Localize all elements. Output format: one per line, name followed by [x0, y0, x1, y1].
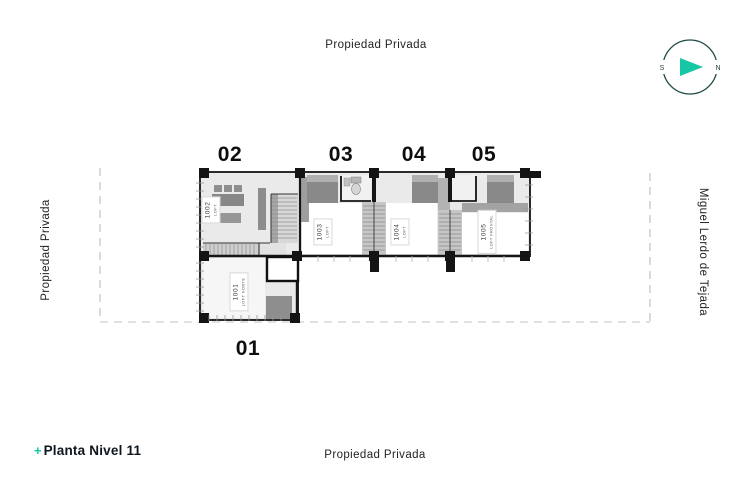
unit-number-03[interactable]: 03: [329, 143, 354, 167]
unit-type-label: LOFT NORTE: [241, 278, 246, 307]
bed-unit-04-icon: [412, 175, 438, 203]
unit-tag-1004: 1004 LOFT: [390, 219, 409, 246]
street-label-right: Miguel Lerdo de Tejada: [697, 188, 709, 316]
unit-code: 1001: [232, 284, 240, 301]
unit-tag-1002: 1002 LOFT: [201, 197, 220, 224]
unit-number-01[interactable]: 01: [236, 337, 261, 361]
unit-number-05[interactable]: 05: [472, 143, 497, 167]
stairs-unit-02-icon: [271, 194, 298, 243]
floor-plan-sheet: Propiedad Privada Propiedad Privada Migu…: [0, 0, 750, 500]
stairs-between-03-04-icon: [362, 202, 386, 256]
street-label-left: Propiedad Privada: [40, 199, 52, 300]
floor-plan-drawing: [0, 0, 750, 500]
compass-arrow-icon: [680, 58, 703, 76]
sheet-title-label: Planta Nivel 11: [44, 443, 142, 458]
compass-label-north: N: [715, 65, 720, 72]
stairs-between-01-02-icon: [203, 243, 286, 256]
unit-number-04[interactable]: 04: [402, 143, 427, 167]
unit-05-bath-floor: [452, 175, 476, 200]
unit-tag-1005: 1005 LOFT FRONTAL: [477, 210, 496, 254]
unit-tag-1003: 1003 LOFT: [313, 219, 332, 246]
unit-type-label: LOFT: [325, 226, 330, 238]
unit-code: 1005: [480, 224, 488, 241]
bed-unit-01-icon: [266, 296, 292, 319]
unit-tag-1001: 1001 LOFT NORTE: [229, 273, 248, 312]
kitchen-counter-02-icon: [258, 188, 266, 230]
unit-number-02[interactable]: 02: [218, 143, 243, 167]
unit-code: 1002: [204, 202, 212, 219]
compass: S N: [656, 33, 724, 101]
bed-unit-05-icon: [487, 175, 514, 203]
sheet-title: + Planta Nivel 11: [34, 443, 141, 458]
street-label-top: Propiedad Privada: [325, 39, 426, 51]
plus-icon: +: [34, 443, 42, 458]
unit-code: 1004: [393, 224, 401, 241]
street-label-bottom: Propiedad Privada: [324, 449, 425, 461]
unit-type-label: LOFT: [402, 226, 407, 238]
unit-type-label: LOFT FRONTAL: [489, 215, 494, 249]
compass-label-south: S: [660, 65, 665, 72]
unit-type-label: LOFT: [213, 204, 218, 216]
bed-unit-03-icon: [307, 175, 338, 203]
unit-code: 1003: [316, 224, 324, 241]
